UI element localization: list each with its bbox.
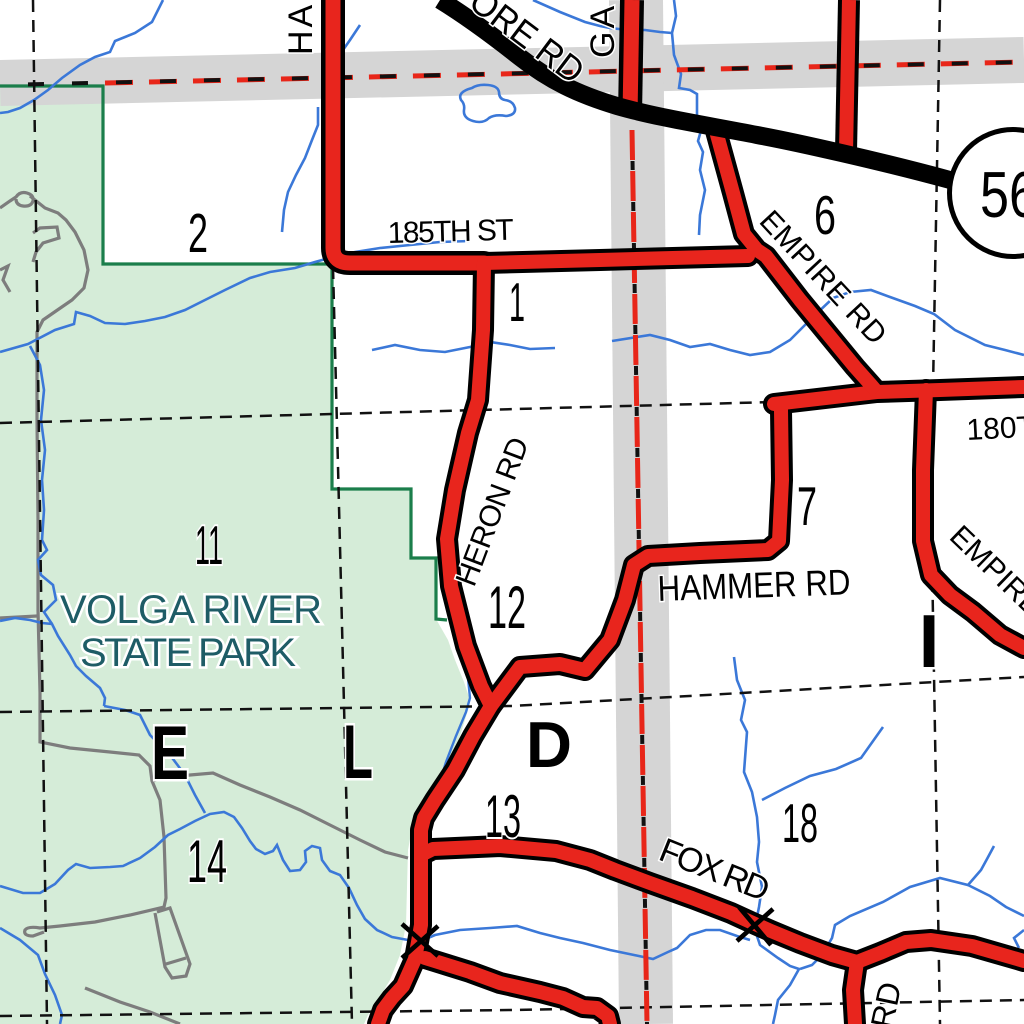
svg-text:13: 13 <box>485 783 521 850</box>
svg-text:HAMMER RD: HAMMER RD <box>657 561 851 609</box>
svg-text:L: L <box>343 710 373 795</box>
svg-text:11: 11 <box>195 514 223 576</box>
svg-text:1: 1 <box>509 271 525 333</box>
svg-text:18: 18 <box>782 792 818 854</box>
svg-text:180TH ST: 180TH ST <box>966 407 1024 447</box>
svg-text:56: 56 <box>980 158 1024 231</box>
svg-text:185TH ST: 185TH ST <box>387 214 514 250</box>
svg-text:2: 2 <box>188 202 208 264</box>
svg-text:E: E <box>151 711 189 796</box>
svg-text:GA: GA <box>584 3 622 58</box>
svg-text:I: I <box>919 599 940 683</box>
svg-text:HA: HA <box>282 2 320 55</box>
svg-text:7: 7 <box>797 475 817 537</box>
svg-text:14: 14 <box>187 828 227 895</box>
svg-text:VOLGA RIVER: VOLGA RIVER <box>60 588 322 632</box>
svg-text:6: 6 <box>814 184 836 246</box>
svg-text:STATE PARK: STATE PARK <box>80 631 296 675</box>
svg-text:D: D <box>526 708 572 781</box>
svg-text:12: 12 <box>488 574 526 641</box>
